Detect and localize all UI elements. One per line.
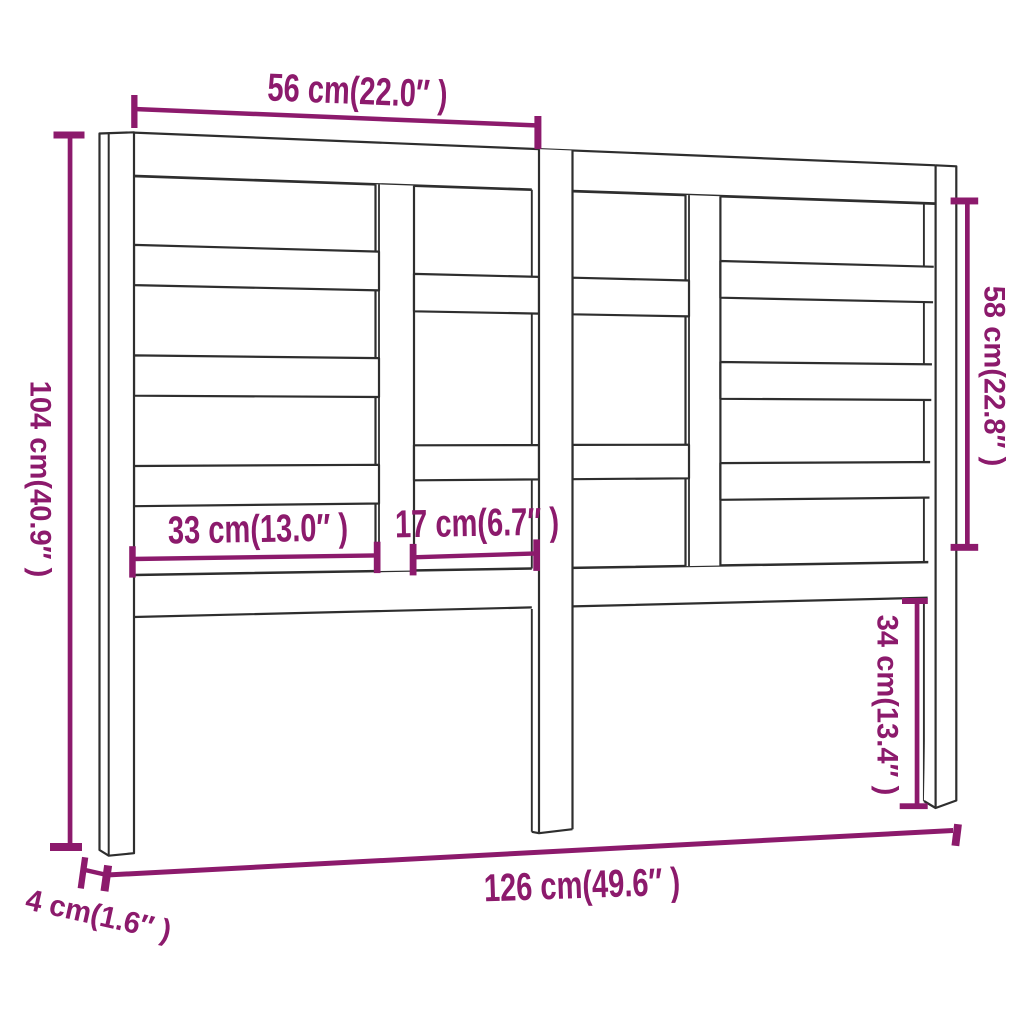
svg-text:58 cm(22.8″ ): 58 cm(22.8″ ) — [977, 286, 1010, 467]
svg-text:126 cm(49.6″ ): 126 cm(49.6″ ) — [483, 861, 681, 911]
svg-text:56 cm(22.0″ ): 56 cm(22.0″ ) — [267, 66, 449, 116]
svg-text:17 cm(6.7″ ): 17 cm(6.7″ ) — [395, 501, 560, 547]
svg-text:104 cm(40.9″ ): 104 cm(40.9″ ) — [23, 381, 56, 578]
svg-text:34 cm(13.4″ ): 34 cm(13.4″ ) — [870, 615, 903, 796]
svg-text:33 cm(13.0″ ): 33 cm(13.0″ ) — [168, 506, 349, 552]
